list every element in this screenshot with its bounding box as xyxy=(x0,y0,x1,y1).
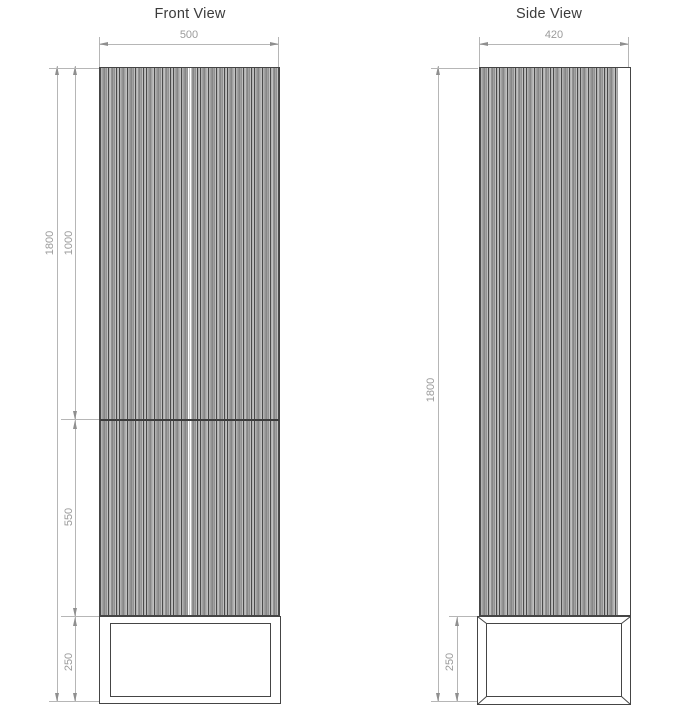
side-plinth-frame xyxy=(477,616,631,705)
side-cabinet-body xyxy=(479,67,631,616)
front-door-center-seam xyxy=(188,68,191,615)
front-total-height-label: 1800 xyxy=(44,231,56,255)
front-total-height-dim-line xyxy=(57,66,58,702)
front-view-title: Front View xyxy=(100,6,280,22)
side-depth-dim-line xyxy=(479,44,629,45)
front-width-label: 500 xyxy=(99,29,279,41)
side-base-dim-line xyxy=(457,617,458,702)
side-total-height-label: 1800 xyxy=(425,378,437,402)
dim-arrow-right-icon xyxy=(270,42,279,46)
side-depth-label: 420 xyxy=(479,29,629,41)
front-base-label: 250 xyxy=(63,653,75,671)
front-plinth-frame xyxy=(99,616,281,704)
dim-arrow-up-icon xyxy=(73,420,77,429)
dim-arrow-left-icon xyxy=(479,42,488,46)
side-total-height-dim-line xyxy=(438,66,439,702)
front-base-dim-line xyxy=(75,617,76,702)
front-upper-section-dim-line xyxy=(75,66,76,420)
dim-arrow-up-icon xyxy=(455,617,459,626)
front-door-divider-line xyxy=(100,419,279,421)
front-ext-bottom xyxy=(49,701,99,702)
dim-arrow-right-icon xyxy=(620,42,629,46)
side-base-label: 250 xyxy=(444,653,456,671)
dim-arrow-left-icon xyxy=(99,42,108,46)
dim-arrow-up-icon xyxy=(73,617,77,626)
front-ext-plinth-top xyxy=(61,616,99,617)
front-cabinet-body xyxy=(99,67,280,616)
side-ext-bottom xyxy=(431,701,477,702)
front-lower-section-label: 550 xyxy=(63,508,75,526)
front-ext-divider xyxy=(61,419,99,420)
side-view-title: Side View xyxy=(474,6,624,22)
side-fluted-texture xyxy=(480,68,618,615)
technical-drawing-canvas: Front View 500 1800 1000 550 250 Side Vi… xyxy=(0,0,686,725)
front-ext-top xyxy=(49,68,99,69)
front-width-dim-line xyxy=(99,44,279,45)
front-plinth-opening xyxy=(110,623,271,697)
front-upper-section-label: 1000 xyxy=(63,231,75,255)
side-ext-top xyxy=(431,68,478,69)
front-lower-section-dim-line xyxy=(75,420,76,617)
side-ext-plinth-top xyxy=(449,616,477,617)
